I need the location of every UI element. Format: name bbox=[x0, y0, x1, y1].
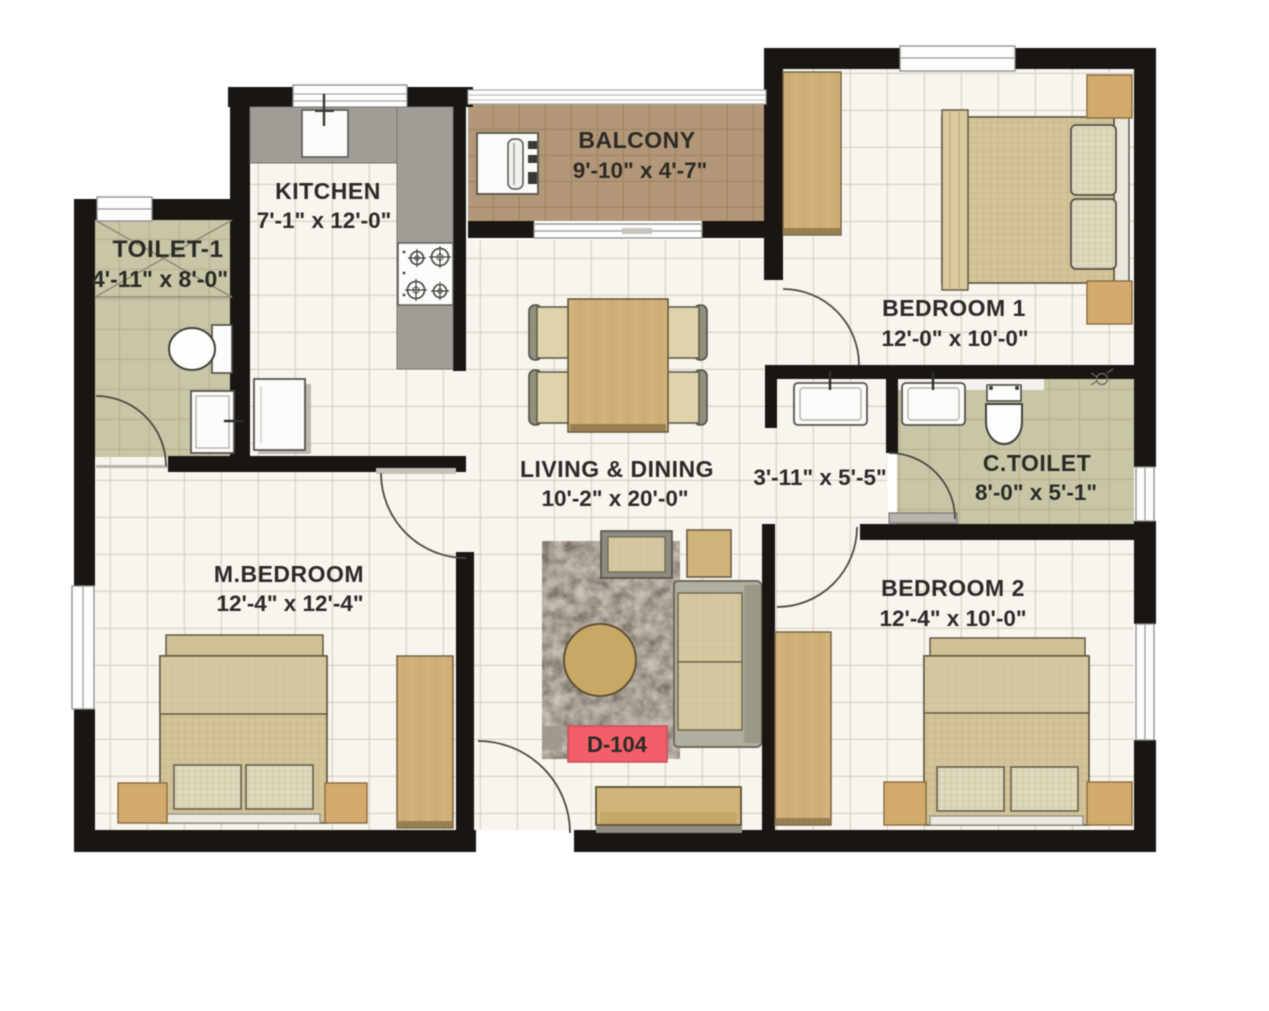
svg-text:12'-0" x 10'-0": 12'-0" x 10'-0" bbox=[881, 326, 1028, 351]
svg-text:12'-4" x 10'-0": 12'-4" x 10'-0" bbox=[879, 606, 1026, 631]
svg-text:TOILET-1: TOILET-1 bbox=[112, 236, 223, 263]
svg-text:KITCHEN: KITCHEN bbox=[275, 178, 381, 204]
svg-text:LIVING & DINING: LIVING & DINING bbox=[520, 456, 714, 482]
svg-text:BEDROOM 2: BEDROOM 2 bbox=[881, 575, 1025, 601]
svg-text:4'-11" x 8'-0": 4'-11" x 8'-0" bbox=[92, 266, 228, 292]
svg-text:BALCONY: BALCONY bbox=[578, 127, 695, 153]
svg-text:D-104: D-104 bbox=[587, 732, 648, 757]
svg-text:3'-11" x 5'-5": 3'-11" x 5'-5" bbox=[753, 465, 886, 490]
svg-text:8'-0" x 5'-1": 8'-0" x 5'-1" bbox=[975, 480, 1097, 505]
svg-text:7'-1" x 12'-0": 7'-1" x 12'-0" bbox=[257, 208, 392, 233]
svg-text:BEDROOM 1: BEDROOM 1 bbox=[882, 295, 1026, 321]
svg-text:C.TOILET: C.TOILET bbox=[983, 450, 1091, 476]
svg-text:9'-10" x 4'-7": 9'-10" x 4'-7" bbox=[573, 158, 708, 183]
svg-text:12'-4" x 12'-4": 12'-4" x 12'-4" bbox=[216, 591, 363, 616]
svg-text:M.BEDROOM: M.BEDROOM bbox=[214, 561, 364, 587]
svg-text:10'-2" x 20'-0": 10'-2" x 20'-0" bbox=[541, 486, 688, 511]
